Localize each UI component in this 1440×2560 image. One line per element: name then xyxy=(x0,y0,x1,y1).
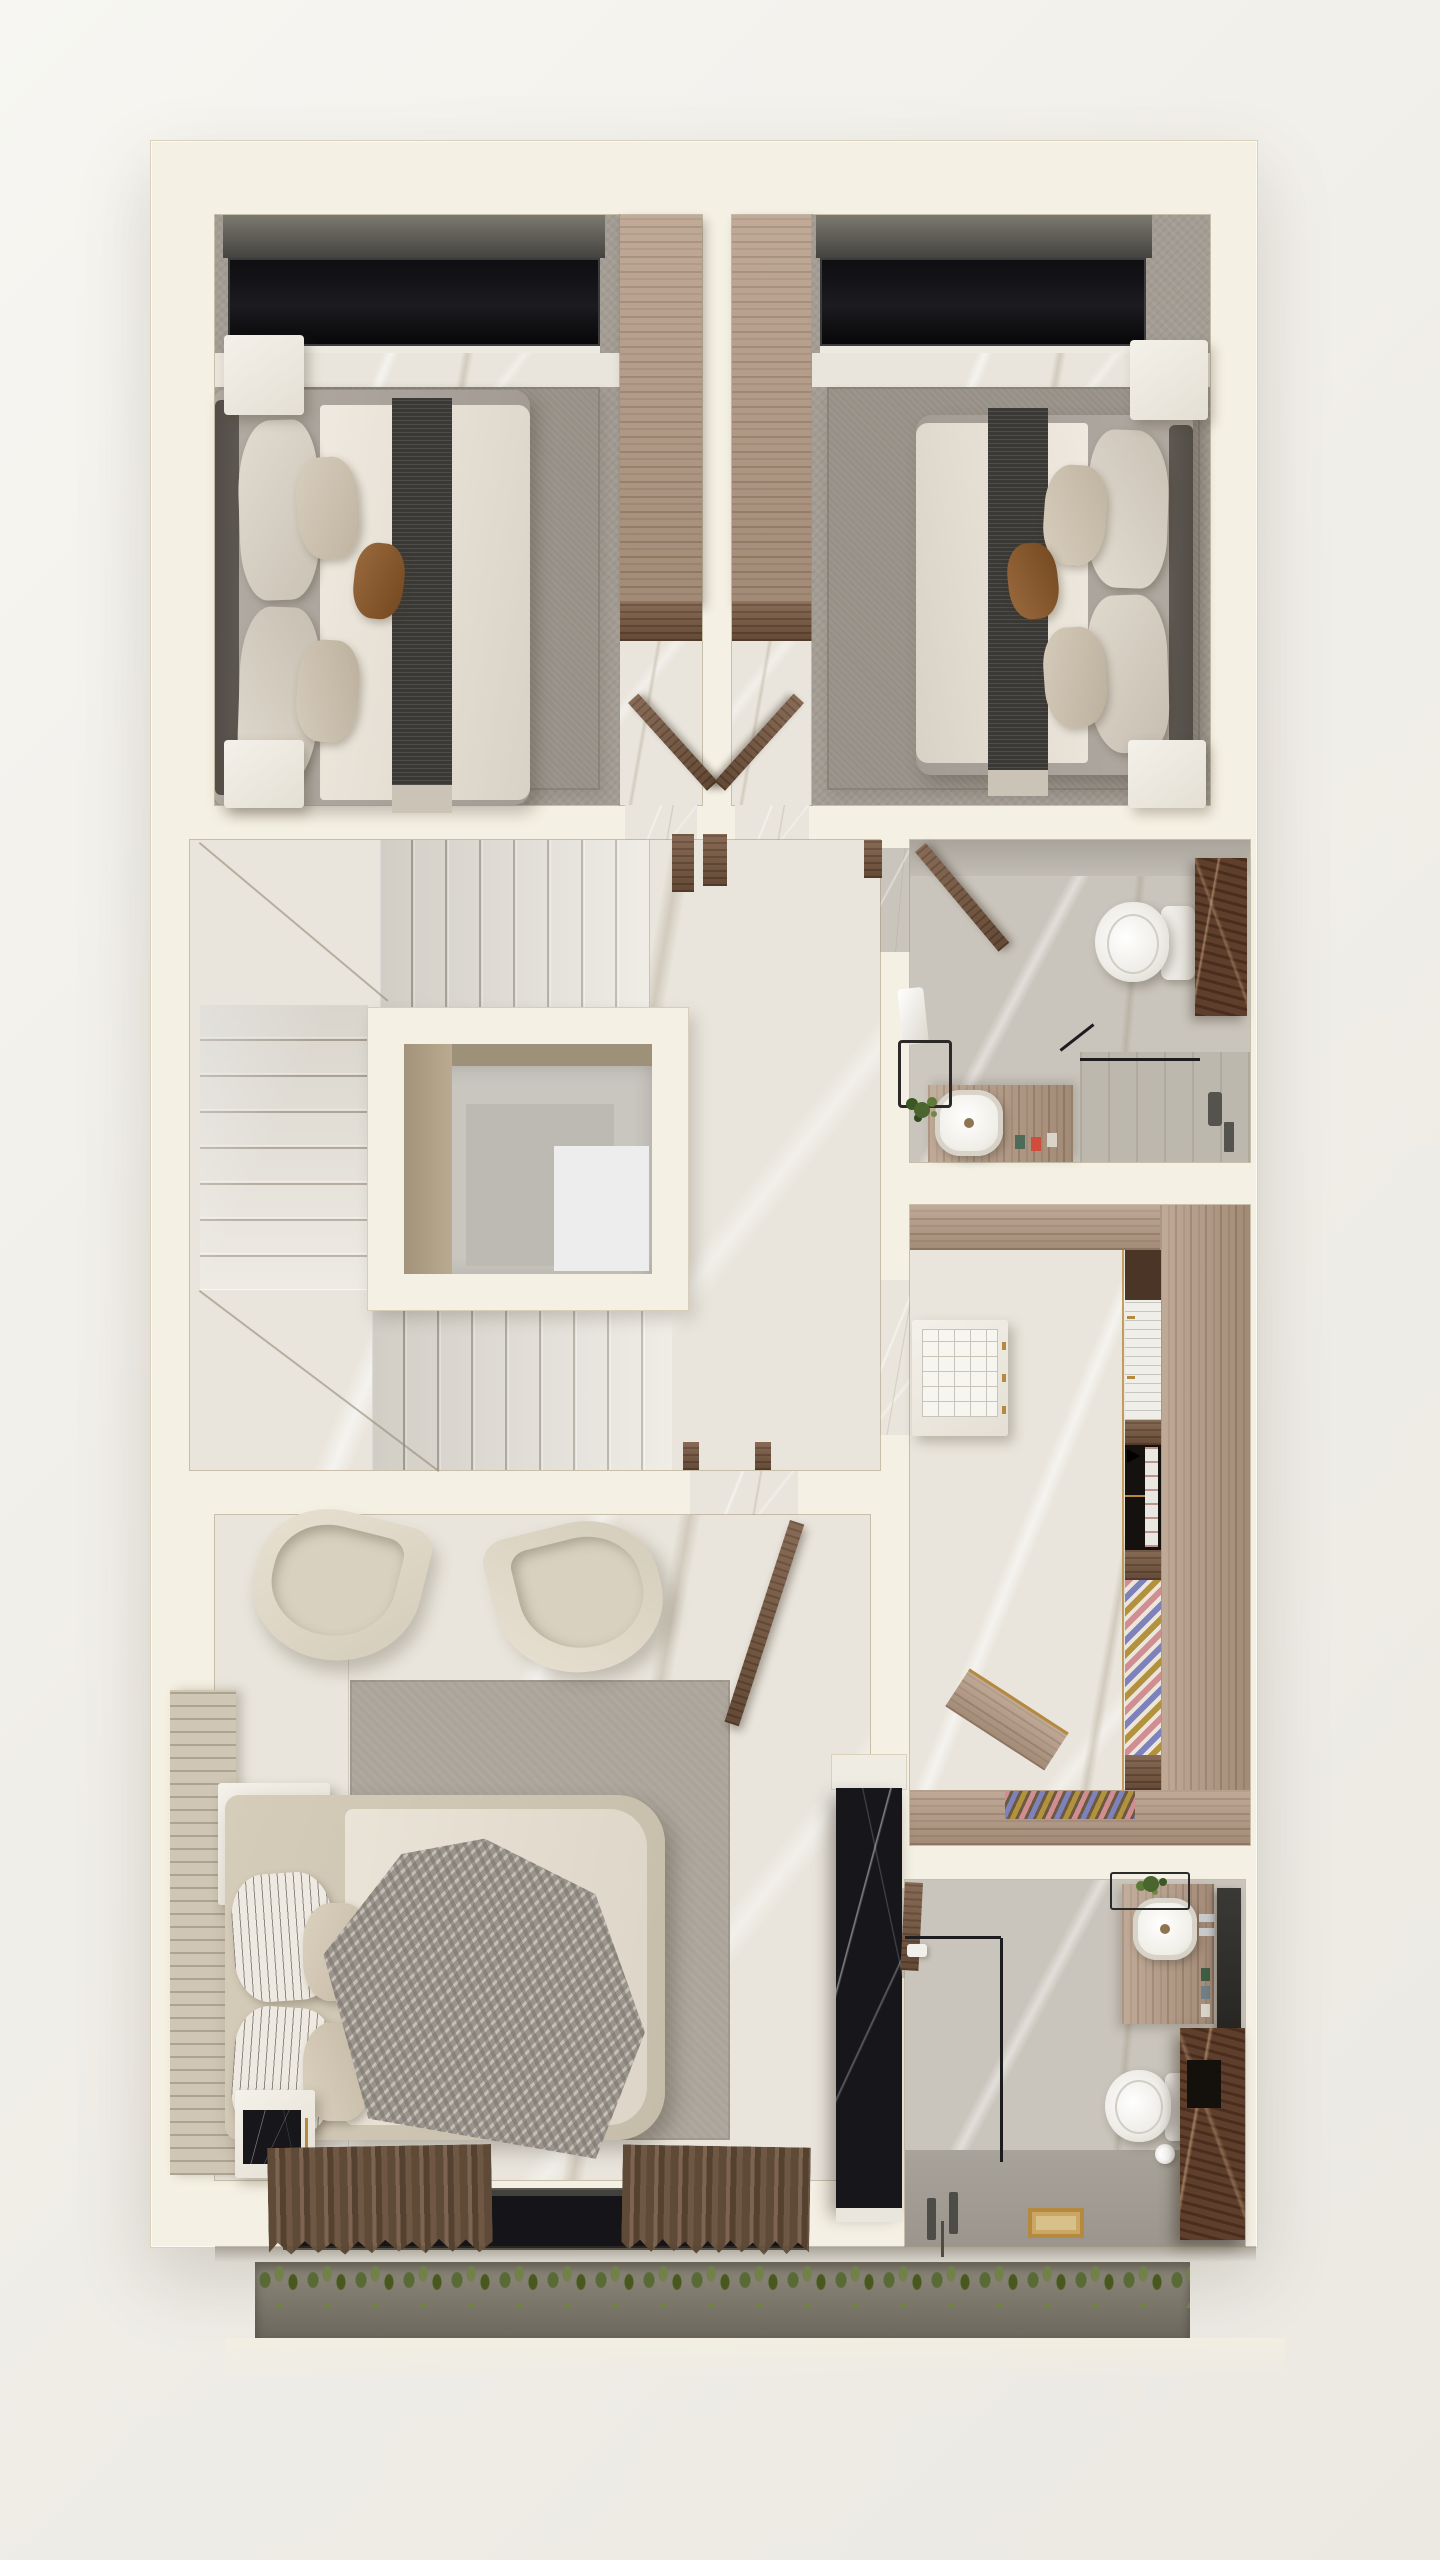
plant xyxy=(1143,1876,1159,1892)
faucet-chrome xyxy=(1199,1914,1215,1922)
corner-shelf-diagonal xyxy=(945,1668,1068,1770)
black-marble-media-wall xyxy=(836,1788,902,2208)
nightstand xyxy=(1130,340,1208,420)
niche-tie-rack xyxy=(1125,1580,1161,1755)
void-lower-floor-light xyxy=(554,1146,649,1271)
master-window-zone xyxy=(215,2150,870,2256)
nightstand xyxy=(224,335,304,415)
gold-trim xyxy=(1122,1250,1124,1790)
window-recess xyxy=(223,215,605,258)
wall-shadow-gap xyxy=(215,2246,1256,2262)
shower-fixtures xyxy=(927,2198,936,2240)
shower-fixtures xyxy=(1208,1092,1222,1126)
door-jamb xyxy=(755,1442,771,1470)
shower-glass-door xyxy=(1060,1023,1095,1051)
door-jamb xyxy=(703,834,727,886)
floor-drain-gold xyxy=(1028,2208,1084,2238)
room-stair-hall xyxy=(190,840,880,1470)
room-vestibule-left xyxy=(620,215,702,805)
window-recess xyxy=(816,215,1152,258)
shower-glass xyxy=(1000,1938,1003,2162)
niche-shelf xyxy=(1125,1420,1161,1445)
door-opening xyxy=(878,848,911,952)
niche-gold-hooks xyxy=(1127,1316,1135,1319)
toiletry-bottles xyxy=(1015,1135,1025,1149)
room-bathroom-2 xyxy=(910,840,1250,1162)
lounge-chair xyxy=(237,1493,436,1679)
toilet-seat xyxy=(1115,2080,1163,2134)
toilet-seat xyxy=(1107,914,1159,974)
stairwell-void-opening xyxy=(404,1044,652,1274)
curtain-left xyxy=(267,2144,493,2256)
island-grid-top xyxy=(922,1329,998,1417)
window-glass xyxy=(228,258,600,346)
master-bed xyxy=(225,1795,665,2140)
room-vestibule-right xyxy=(732,215,812,805)
bed-runner-end xyxy=(392,785,452,813)
nightstand xyxy=(1128,740,1206,808)
door-opening xyxy=(690,1471,798,1516)
wardrobe-niche xyxy=(1125,1250,1161,1790)
toiletry-bottles xyxy=(1201,1968,1210,1981)
room-walk-in-closet xyxy=(910,1205,1250,1845)
accessory-island xyxy=(912,1320,1008,1436)
niche-shelf xyxy=(1125,1755,1161,1790)
island-knobs xyxy=(1002,1342,1006,1350)
niche-shelf xyxy=(1125,1550,1161,1580)
sink-drain xyxy=(964,1118,974,1128)
balcony xyxy=(215,2246,1256,2376)
sink-drain xyxy=(1160,1924,1170,1934)
stair-diagonal-line xyxy=(199,842,389,1002)
shower-floor xyxy=(1080,1052,1250,1162)
toilet xyxy=(1095,902,1203,984)
door-opening xyxy=(876,1280,911,1435)
nightstand xyxy=(224,740,304,808)
niche-shoe-rack xyxy=(1125,1445,1161,1550)
stool-black-frame xyxy=(898,1040,952,1108)
shoe xyxy=(1127,1449,1140,1463)
media-wall-cap xyxy=(832,1755,906,1789)
stairs-left-flight xyxy=(200,1005,368,1290)
room-bedroom-2 xyxy=(812,215,1210,805)
walnut-cabinet xyxy=(1195,858,1247,1016)
curtain-right xyxy=(621,2144,811,2255)
balcony-slab xyxy=(225,2338,1285,2378)
planter-trough xyxy=(255,2262,1190,2338)
niche-shelf xyxy=(1125,1250,1161,1300)
window-sill xyxy=(820,346,1146,353)
shower-glass xyxy=(1080,1058,1200,1061)
void-inner-wall xyxy=(404,1044,452,1274)
shower-head xyxy=(907,1944,927,1957)
room-master-bathroom xyxy=(905,1880,1245,2246)
wardrobe xyxy=(620,215,702,603)
door-leaf-open xyxy=(900,1882,923,1971)
chair-seat xyxy=(507,1525,654,1662)
shower-glass xyxy=(905,1936,1001,1939)
door-opening xyxy=(735,805,809,841)
room-master-bedroom xyxy=(215,1515,870,2180)
door-leaf-open xyxy=(724,1520,804,1726)
folded-clothes-row xyxy=(1005,1791,1135,1819)
stairs-lower-flight xyxy=(372,1310,672,1470)
wardrobe-base xyxy=(732,603,812,641)
bed-headboard xyxy=(1169,425,1193,755)
plant xyxy=(914,1102,930,1118)
bed-runner-end xyxy=(988,770,1048,796)
brown-marble-cabinet xyxy=(1180,2028,1245,2240)
toilet-paper-roll xyxy=(1155,2144,1175,2164)
bed-headboard xyxy=(215,400,239,795)
gold-rail xyxy=(1125,1495,1145,1497)
stairs-upper-flight xyxy=(380,840,650,1010)
door-jamb xyxy=(683,1442,699,1470)
lounge-chair xyxy=(478,1505,677,1691)
wardrobe-right-band xyxy=(1160,1205,1250,1845)
room-bedroom-1 xyxy=(215,215,620,805)
floor-plan-render xyxy=(0,0,1440,2560)
wardrobe-base xyxy=(620,603,702,641)
grasses xyxy=(255,2262,1190,2308)
door-jamb xyxy=(672,834,694,892)
void-inner-wall xyxy=(452,1044,652,1066)
towel xyxy=(897,987,929,1045)
door-jamb xyxy=(864,840,882,878)
chair-seat xyxy=(261,1513,408,1650)
shoe-boxes xyxy=(1145,1447,1158,1547)
window-glass xyxy=(820,258,1146,346)
wardrobe xyxy=(732,215,812,603)
cabinet-niche xyxy=(1187,2060,1221,2108)
